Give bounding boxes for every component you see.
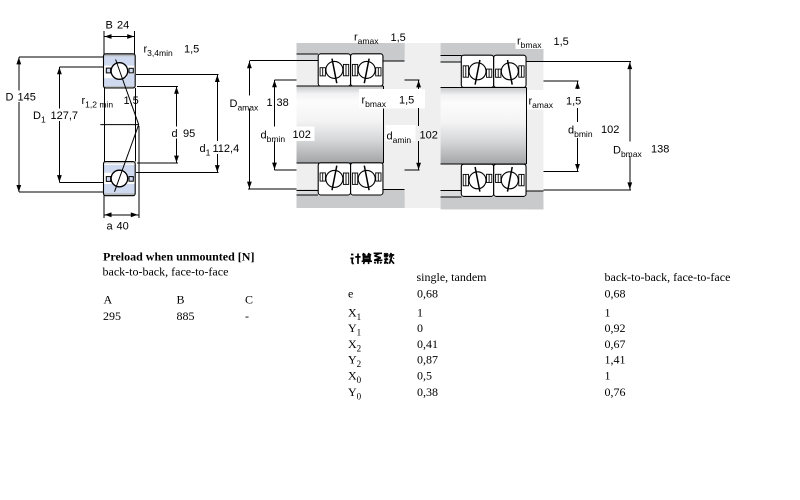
svg-text:0,41: 0,41 [417,337,438,351]
svg-text:single, tandem: single, tandem [417,270,488,284]
svg-text:0,67: 0,67 [605,337,626,351]
svg-text:B: B [106,20,113,32]
svg-text:D: D [6,92,14,104]
svg-text:102: 102 [601,124,619,136]
svg-text:back-to-back, face-to-face: back-to-back, face-to-face [605,270,731,284]
svg-text:24: 24 [117,20,129,32]
svg-text:1: 1 [605,368,611,382]
svg-text:95: 95 [183,128,195,140]
svg-text:885: 885 [177,309,195,323]
svg-text:1,5: 1,5 [399,94,414,106]
svg-text:0,5: 0,5 [417,368,432,382]
svg-text:-: - [245,309,249,323]
svg-text:1,5: 1,5 [184,44,199,56]
svg-text:0,38: 0,38 [417,385,438,399]
svg-text:Preload when unmounted [N]: Preload when unmounted [N] [103,250,254,264]
svg-text:138: 138 [651,144,669,156]
svg-text:295: 295 [103,309,121,323]
svg-text:A: A [104,293,113,307]
svg-text:0,76: 0,76 [605,385,626,399]
svg-text:38: 38 [277,97,289,109]
svg-text:B: B [177,293,185,307]
svg-text:back-to-back, face-to-face: back-to-back, face-to-face [103,265,229,279]
svg-text:112,4: 112,4 [213,143,240,155]
svg-text:0,68: 0,68 [417,286,438,300]
svg-text:1: 1 [267,97,273,109]
svg-text:1,5: 1,5 [554,36,569,48]
svg-text:145: 145 [18,92,36,104]
svg-text:1,5: 1,5 [391,32,406,44]
svg-text:0,68: 0,68 [605,286,626,300]
svg-text:1,5: 1,5 [566,95,581,107]
svg-text:1: 1 [417,305,423,319]
svg-text:a: a [107,221,114,233]
svg-text:102: 102 [420,130,438,142]
svg-text:0,87: 0,87 [417,353,438,367]
svg-text:1,41: 1,41 [605,353,626,367]
svg-text:1,5: 1,5 [124,95,139,107]
svg-text:0: 0 [417,321,423,335]
svg-text:0,92: 0,92 [605,321,626,335]
svg-text:C: C [245,293,253,307]
svg-text:e: e [348,286,353,300]
svg-text:d: d [172,128,178,140]
svg-text:102: 102 [293,129,311,141]
svg-text:40: 40 [117,221,129,233]
svg-text:127,7: 127,7 [51,110,79,122]
svg-text:1: 1 [605,305,611,319]
